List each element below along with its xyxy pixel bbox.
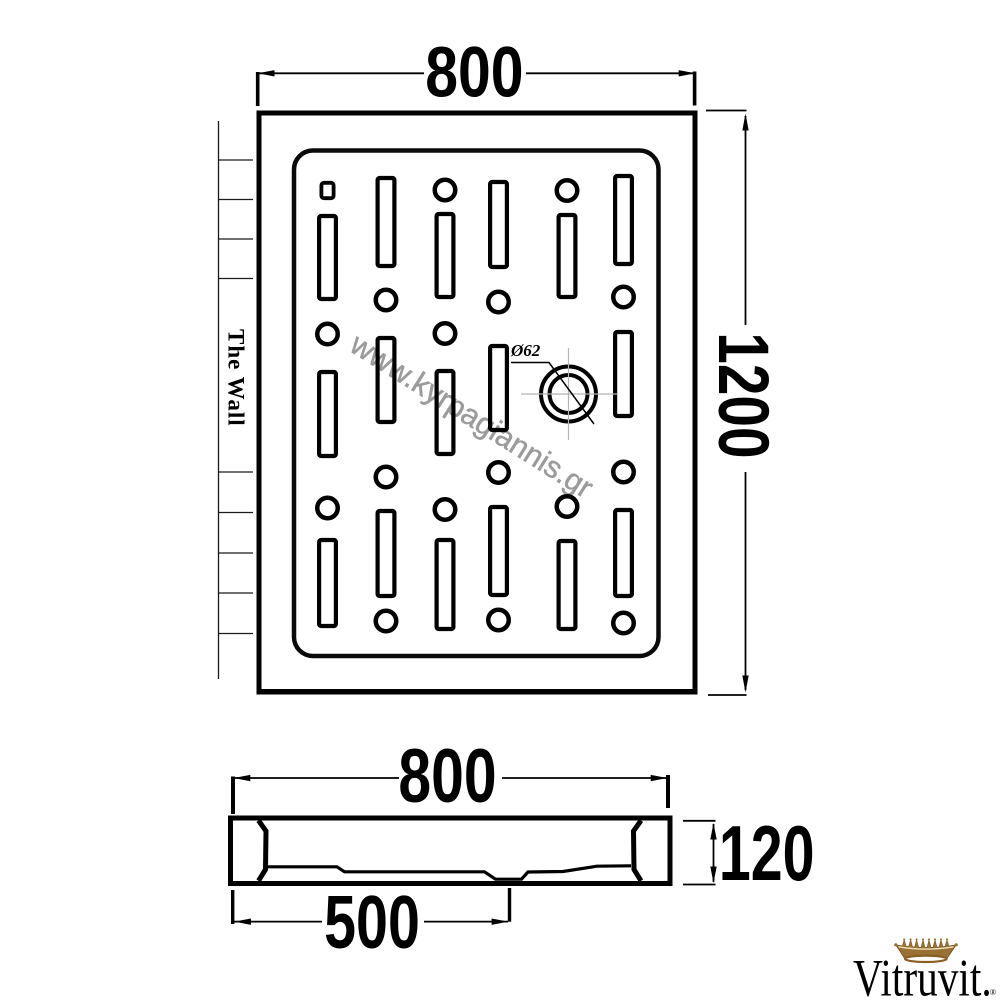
svg-text:800: 800 [398, 734, 496, 819]
svg-text:The Wall: The Wall [224, 329, 249, 427]
svg-text:1200: 1200 [703, 332, 783, 458]
svg-text:Ø62: Ø62 [510, 341, 541, 360]
svg-text:800: 800 [425, 32, 523, 111]
svg-text:Vitruvit.: Vitruvit. [853, 950, 992, 1000]
svg-text:®: ® [990, 987, 997, 997]
svg-text:120: 120 [719, 809, 815, 897]
svg-text:500: 500 [324, 882, 420, 965]
